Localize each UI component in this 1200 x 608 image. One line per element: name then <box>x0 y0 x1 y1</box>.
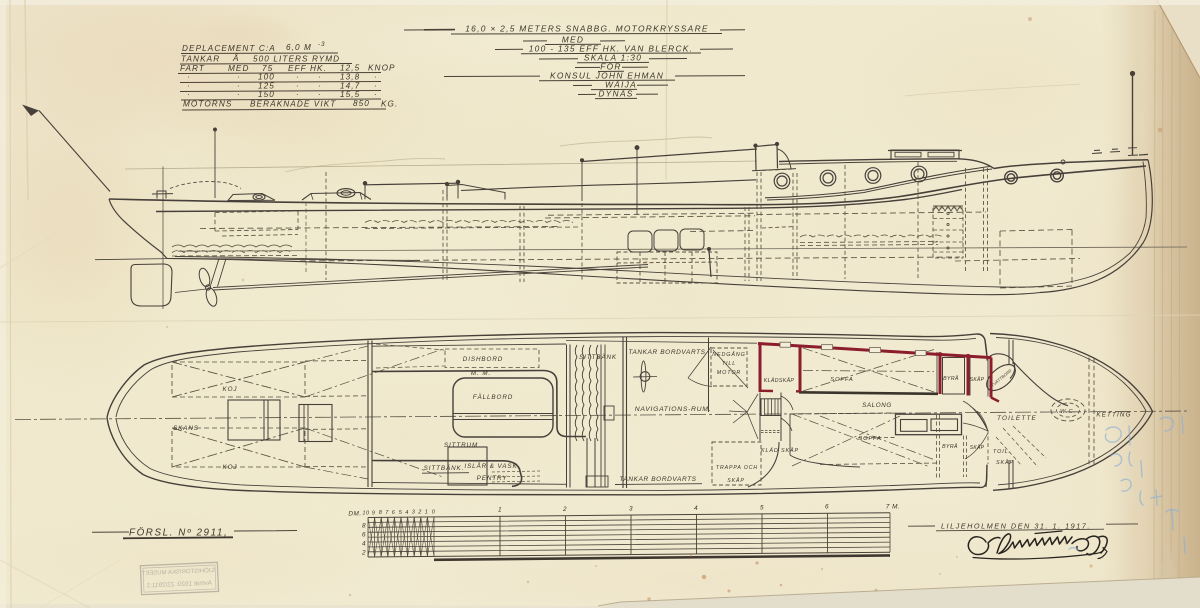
svg-text:DEPLACEMENT C:A: DEPLACEMENT C:A <box>182 44 276 53</box>
svg-text:TOILETTE: TOILETTE <box>997 415 1037 422</box>
svg-text:SOFFA: SOFFA <box>830 377 853 383</box>
svg-text:PENTRY: PENTRY <box>477 475 508 482</box>
svg-text:ISLÅR & VASK: ISLÅR & VASK <box>464 461 517 470</box>
svg-text:16,0 × 2,5 METERS SNABBG. M: 16,0 × 2,5 METERS SNABBG. MOTORKRYSSARE <box>465 24 709 34</box>
svg-text:13,8: 13,8 <box>340 73 360 82</box>
svg-text:SALONG: SALONG <box>862 402 892 409</box>
svg-text:·: · <box>374 90 378 99</box>
svg-text:TOIL.: TOIL. <box>993 449 1011 455</box>
svg-text:W.C.: W.C. <box>1060 409 1076 415</box>
svg-text:MOTOR: MOTOR <box>717 370 741 376</box>
svg-text:KNOP: KNOP <box>368 64 396 73</box>
svg-text:7 M.: 7 M. <box>886 503 900 510</box>
svg-text:SITTBÄNK: SITTBÄNK <box>579 353 617 361</box>
svg-text:4: 4 <box>694 505 698 512</box>
svg-text:·: · <box>318 73 322 82</box>
svg-text:0: 0 <box>432 509 436 515</box>
svg-text:FART: FART <box>180 64 205 73</box>
svg-text:·: · <box>318 90 322 99</box>
svg-text:BYRÅ: BYRÅ <box>942 443 958 450</box>
svg-text:6: 6 <box>362 532 366 539</box>
svg-text:SITTBÄNK.: SITTBÄNK. <box>424 464 465 472</box>
svg-text:9: 9 <box>372 510 376 516</box>
svg-text:5: 5 <box>399 510 403 516</box>
svg-text:6: 6 <box>392 510 396 516</box>
svg-text:BYRÅ: BYRÅ <box>943 375 959 382</box>
svg-text:6: 6 <box>825 504 829 511</box>
svg-text:SKÅP: SKÅP <box>727 477 744 484</box>
svg-text:SKÅP: SKÅP <box>970 444 985 451</box>
svg-text:3: 3 <box>412 510 416 516</box>
svg-text:6,0 M: 6,0 M <box>286 43 312 52</box>
svg-text:KLÄDSKÅP: KLÄDSKÅP <box>764 377 795 384</box>
svg-text:SOFFA: SOFFA <box>858 436 881 442</box>
svg-text:500 LITERS RYMD: 500 LITERS RYMD <box>253 55 340 64</box>
svg-text:SKÅP: SKÅP <box>996 459 1014 466</box>
svg-text:2: 2 <box>562 506 567 513</box>
svg-text:DISHBORD: DISHBORD <box>463 356 503 363</box>
svg-text:·: · <box>374 73 378 82</box>
svg-text:1: 1 <box>425 510 429 516</box>
svg-text:TILL: TILL <box>722 361 736 367</box>
svg-text:4: 4 <box>362 541 366 548</box>
svg-text:KETTING: KETTING <box>1096 412 1131 419</box>
svg-text:8: 8 <box>362 523 366 530</box>
svg-text:·: · <box>296 73 300 82</box>
svg-text:M. M.: M. M. <box>471 370 491 377</box>
svg-text:SKÅP: SKÅP <box>970 376 985 383</box>
svg-text:TANKAR BORDVARTS: TANKAR BORDVARTS <box>628 349 705 356</box>
svg-text:3: 3 <box>629 506 633 513</box>
svg-text:KG.: KG. <box>381 100 398 109</box>
svg-text:KLÄD SKÅP: KLÄD SKÅP <box>761 447 799 454</box>
svg-text:SITTRUM: SITTRUM <box>444 442 478 449</box>
svg-text:NAVIGATIONS-RUM.: NAVIGATIONS-RUM. <box>635 406 711 413</box>
svg-text:KOJ: KOJ <box>223 386 238 393</box>
svg-text:MOTORNS: MOTORNS <box>183 100 232 109</box>
svg-text:7: 7 <box>385 510 389 516</box>
svg-text:FÄLLBORD: FÄLLBORD <box>473 393 513 401</box>
svg-text:SKANS: SKANS <box>173 425 199 432</box>
svg-text:5: 5 <box>760 504 764 511</box>
svg-text:10: 10 <box>362 510 370 516</box>
svg-text:TRAPPA OCH: TRAPPA OCH <box>716 465 758 471</box>
svg-text:12,5: 12,5 <box>340 64 360 73</box>
svg-text:TANKAR: TANKAR <box>181 55 220 64</box>
svg-text:NEDGÅNG: NEDGÅNG <box>712 351 746 358</box>
svg-text:15,5: 15,5 <box>340 90 360 99</box>
svg-text:2: 2 <box>417 510 422 516</box>
svg-text:1: 1 <box>498 507 502 514</box>
svg-text:2: 2 <box>361 550 366 557</box>
svg-text:850: 850 <box>353 99 370 108</box>
svg-text:-3: -3 <box>318 42 326 48</box>
svg-text:·: · <box>237 73 241 82</box>
svg-text:Å: Å <box>232 53 240 63</box>
svg-text:TANKAR BORDVARTS: TANKAR BORDVARTS <box>619 476 696 483</box>
svg-text:4: 4 <box>405 510 409 516</box>
svg-text:KOJ: KOJ <box>223 464 238 471</box>
svg-text:100: 100 <box>258 73 275 82</box>
svg-text:8: 8 <box>379 510 383 516</box>
svg-text:DM.: DM. <box>348 511 361 518</box>
